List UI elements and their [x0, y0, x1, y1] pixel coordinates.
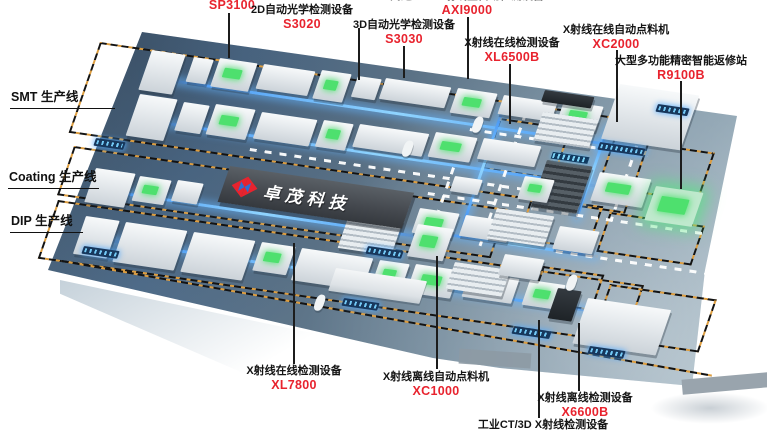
callout-axi9000: 高速CT型X射线全自动检测设备 AXI9000: [390, 0, 544, 17]
callout-leader-line: [228, 13, 230, 58]
machine-screen: [322, 79, 339, 91]
callout-leader-line: [403, 46, 405, 78]
machine-screen: [325, 129, 342, 140]
callout-industrial-ct: 工业CT/3D X射线检测设备: [478, 419, 608, 430]
callout-leader-line: [509, 64, 511, 124]
machine-screen: [656, 195, 690, 215]
callout-xl6500b: X射线在线检测设备 XL6500B: [464, 37, 559, 64]
label-smt-line: SMT 生产线: [10, 86, 115, 109]
machine: [180, 232, 255, 281]
machine-screen: [440, 141, 462, 152]
callout-leader-line: [578, 323, 580, 391]
callout-x6600b: X射线离线检测设备 X6600B: [537, 392, 632, 419]
floor-soft-shadow: [650, 392, 767, 424]
callout-xc1000: X射线离线自动点料机 XC1000: [383, 371, 489, 398]
machine: [112, 222, 187, 271]
callout-leader-line: [293, 243, 295, 364]
machine-screen: [263, 252, 282, 264]
machine-screen: [461, 97, 482, 108]
machine-screen: [527, 184, 543, 194]
callout-xc2000: X射线在线自动点料机 XC2000: [563, 24, 669, 51]
machine-screen: [142, 184, 159, 194]
factory-layout-scene: 卓茂科技 SMT 生产线 Coating 生产线 DIP 生产线 SP3100 …: [0, 0, 767, 430]
label-coating-line: Coating 生产线: [8, 166, 99, 189]
callout-leader-line: [680, 81, 682, 189]
machine-screen: [532, 289, 551, 300]
zone-dash-edge: [697, 299, 717, 352]
company-name: 卓茂科技: [261, 178, 356, 214]
callout-r9100b: 大型多功能精密智能返修站 R9100B: [615, 55, 747, 82]
label-dip-line: DIP 生产线: [10, 210, 83, 233]
machine-screen: [419, 235, 439, 248]
machine-screen: [222, 68, 243, 80]
machine-screen: [218, 114, 240, 127]
callout-xl7800: X射线在线检测设备 XL7800: [246, 365, 341, 392]
callout-leader-line: [436, 256, 438, 369]
zhuomao-logo-icon: [228, 175, 261, 200]
machine-screen: [605, 182, 632, 195]
callout-s3030: 3D自动光学检测设备 S3030: [353, 19, 455, 46]
callout-s3020: 2D自动光学检测设备 S3020: [251, 4, 353, 31]
callout-sp3100: SP3100: [209, 0, 255, 12]
